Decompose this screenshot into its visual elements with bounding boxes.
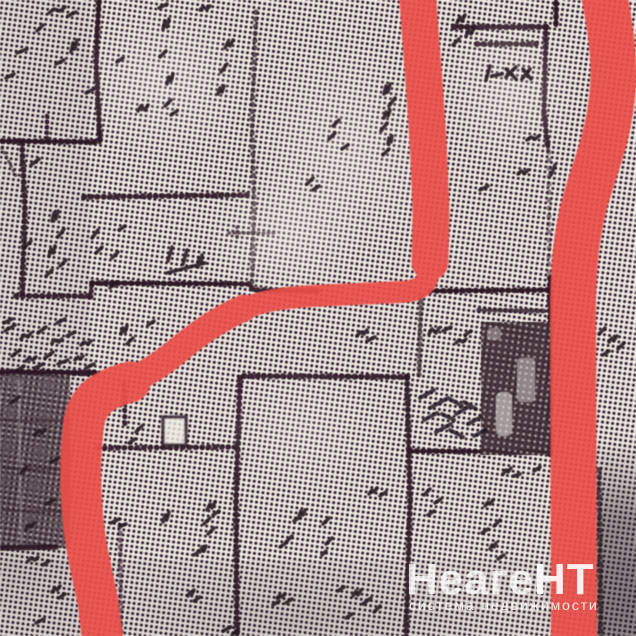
svg-text:НеагеНТ: НеагеНТ <box>406 555 594 604</box>
svg-text:система недвижимости: система недвижимости <box>409 598 599 614</box>
